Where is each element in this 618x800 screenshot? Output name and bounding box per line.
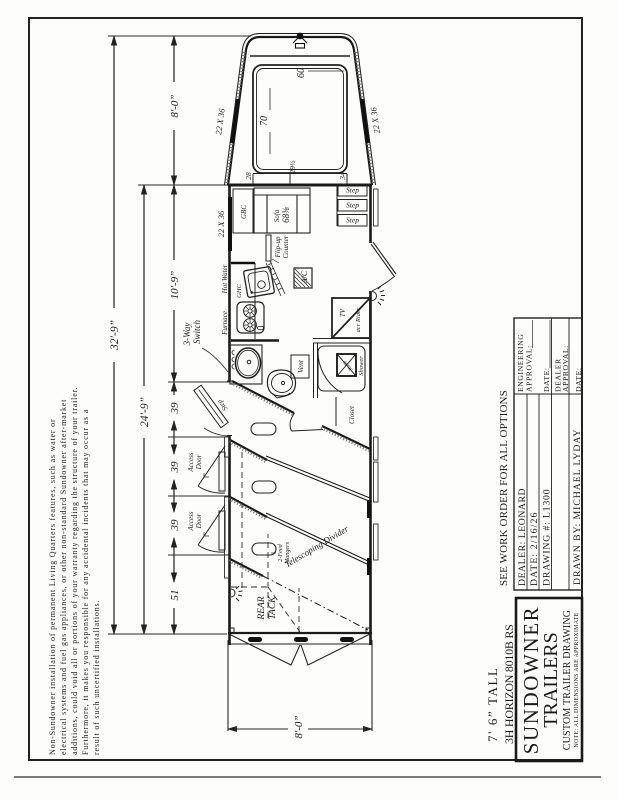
svg-text:Vent: Vent — [296, 359, 305, 373]
svg-text:Access: Access — [187, 511, 195, 531]
svg-text:8'-0”: 8'-0” — [293, 715, 305, 738]
svg-text:Hot Water: Hot Water — [221, 264, 229, 294]
svg-text:Furnace: Furnace — [221, 311, 229, 336]
svg-text:29½: 29½ — [288, 160, 297, 174]
svg-text:Switch: Switch — [192, 320, 202, 344]
svg-text:DRAWN BY: MICHAEL LYDAY: DRAWN BY: MICHAEL LYDAY — [572, 429, 583, 585]
svg-text:electrical systems and fuel ga: electrical systems and fuel gas applianc… — [59, 399, 68, 755]
svg-text:68⅜: 68⅜ — [281, 207, 291, 223]
svg-text:Step: Step — [346, 216, 359, 225]
svg-text:Non-Sundowner installation of: Non-Sundowner installation of permanent … — [48, 419, 57, 755]
svg-text:34: 34 — [338, 172, 347, 181]
svg-text:DATE: 2/16/26: DATE: 2/16/26 — [529, 512, 540, 586]
svg-text:Shower: Shower — [358, 356, 365, 376]
svg-text:7' 6” TALL: 7' 6” TALL — [485, 666, 500, 742]
svg-text:result of such uncertified ins: result of such uncertified installations… — [92, 600, 101, 755]
svg-text:DATE:: DATE: — [542, 367, 551, 392]
svg-text:22 X 36: 22 X 36 — [368, 106, 382, 134]
svg-text:10'-9”: 10'-9” — [169, 271, 181, 300]
svg-text:39: 39 — [169, 461, 181, 474]
svg-text:APPROVAL:: APPROVAL: — [525, 345, 534, 392]
svg-text:Step: Step — [346, 186, 359, 195]
svg-text:60: 60 — [296, 68, 307, 78]
svg-text:36x36: 36x36 — [342, 359, 354, 372]
svg-text:Step: Step — [346, 201, 359, 210]
svg-text:51: 51 — [169, 590, 181, 601]
svg-text:APPROVAL:: APPROVAL: — [561, 345, 570, 392]
svg-text:TACK: TACK — [268, 596, 278, 620]
svg-text:Step: Step — [215, 398, 229, 413]
svg-text:22 X 36: 22 X 36 — [213, 107, 227, 135]
svg-text:acr Rider: acr Rider — [355, 307, 362, 332]
svg-text:2-Feed: 2-Feed — [277, 543, 284, 561]
svg-text:REAR: REAR — [257, 596, 267, 620]
svg-text:CUSTOM TRAILER DRAWING: CUSTOM TRAILER DRAWING — [562, 610, 573, 750]
svg-text:39: 39 — [169, 519, 181, 532]
svg-text:TRAILERS: TRAILERS — [540, 632, 562, 728]
svg-text:DEALER: LEONARD: DEALER: LEONARD — [517, 488, 528, 586]
svg-text:NOTE: ALL DIMENSIONS ARE APPRO: NOTE: ALL DIMENSIONS ARE APPROXIMATE — [574, 612, 580, 747]
svg-text:Door: Door — [195, 454, 203, 470]
svg-text:Closet: Closet — [348, 405, 356, 424]
svg-text:TV: TV — [339, 308, 347, 317]
svg-text:DATE:: DATE: — [574, 367, 583, 392]
svg-text:Mangers: Mangers — [284, 541, 291, 565]
svg-text:3H HORIZON 8010B RS: 3H HORIZON 8010B RS — [502, 624, 516, 744]
svg-text:DRAWING #: L1300: DRAWING #: L1300 — [542, 489, 553, 586]
svg-text:Door: Door — [195, 513, 203, 529]
svg-text:Sofa: Sofa — [273, 209, 281, 222]
svg-text:additions, could void all or p: additions, could void all or portions of… — [70, 387, 79, 755]
svg-text:Flip-up: Flip-up — [274, 236, 282, 258]
svg-text:Access: Access — [187, 452, 195, 472]
svg-text:A/C: A/C — [300, 270, 309, 284]
svg-text:8'-0”: 8'-0” — [169, 94, 181, 117]
svg-text:70: 70 — [259, 116, 270, 126]
svg-text:GBC: GBC — [240, 205, 248, 219]
svg-text:24'-9”: 24'-9” — [139, 397, 151, 427]
svg-text:Telescoping Divider: Telescoping Divider — [283, 523, 351, 569]
svg-text:28: 28 — [244, 172, 253, 180]
svg-text:32'-9”: 32'-9” — [109, 320, 121, 351]
svg-text:Furthermore, it makes you resp: Furthermore, it makes you responsible fo… — [81, 409, 90, 755]
svg-text:22 X 36: 22 X 36 — [216, 210, 226, 237]
svg-text:GHC: GHC — [236, 283, 243, 297]
svg-text:39: 39 — [169, 402, 181, 415]
svg-text:Counter: Counter — [282, 235, 290, 258]
svg-text:SEE WORK ORDER FOR ALL OPTIONS: SEE WORK ORDER FOR ALL OPTIONS — [498, 390, 510, 586]
svg-text:3-Way: 3-Way — [182, 323, 192, 347]
